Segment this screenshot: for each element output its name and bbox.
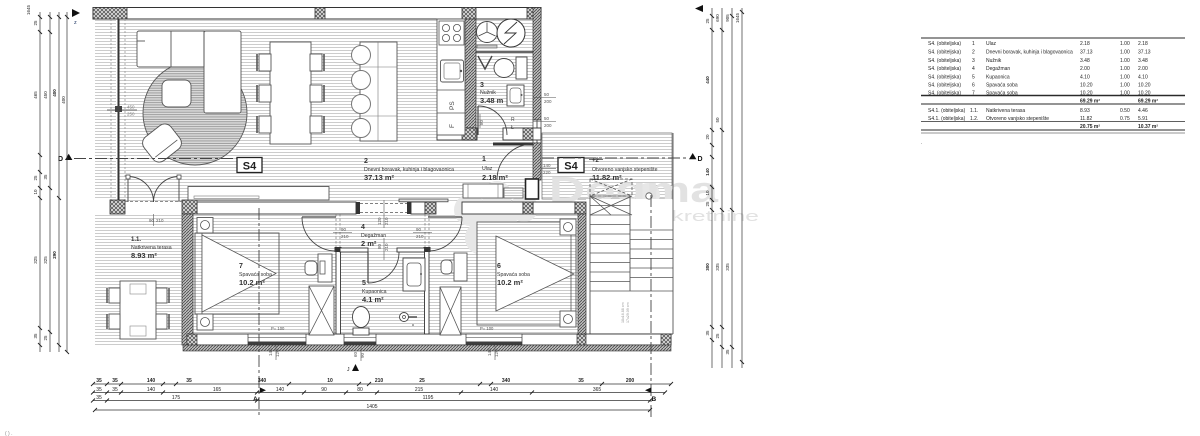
svg-text:0.50: 0.50 [1120, 108, 1130, 114]
svg-text:90: 90 [321, 387, 327, 393]
svg-text:S4. (obiteljska): S4. (obiteljska) [928, 75, 961, 81]
svg-text:210: 210 [341, 234, 349, 239]
svg-text:3: 3 [972, 58, 975, 64]
svg-text:250: 250 [127, 112, 135, 117]
svg-text:Natkrivena terasa: Natkrivena terasa [986, 108, 1025, 114]
svg-text:220: 220 [543, 170, 551, 175]
svg-text:2.18 m²: 2.18 m² [482, 173, 508, 182]
svg-text:25: 25 [705, 18, 710, 24]
svg-text:P= 100: P= 100 [480, 326, 494, 331]
svg-text:S4. (obiteljska): S4. (obiteljska) [928, 58, 961, 64]
svg-text:300: 300 [705, 263, 710, 271]
svg-text:10.37 m²: 10.37 m² [1138, 124, 1158, 130]
svg-text:S4.1. (obiteljska): S4.1. (obiteljska) [928, 108, 966, 114]
svg-text:S4.1. (obiteljska): S4.1. (obiteljska) [928, 116, 966, 122]
svg-text:0.75: 0.75 [1120, 116, 1130, 122]
svg-text:1.1.: 1.1. [970, 108, 978, 114]
svg-text:3.48: 3.48 [1080, 58, 1090, 64]
svg-text:210: 210 [156, 218, 164, 223]
svg-text:2.00: 2.00 [1138, 66, 1148, 72]
svg-text:80: 80 [377, 243, 382, 249]
svg-text:35: 35 [43, 174, 48, 180]
svg-text:10.20: 10.20 [1080, 91, 1093, 97]
svg-text:1.00: 1.00 [1120, 50, 1130, 56]
svg-text:1.00: 1.00 [1120, 66, 1130, 72]
svg-text:690: 690 [715, 14, 720, 22]
svg-text:7: 7 [239, 263, 243, 270]
svg-text:35: 35 [725, 349, 730, 355]
svg-text:1.00: 1.00 [1120, 41, 1130, 47]
svg-text:335: 335 [725, 263, 730, 271]
svg-text:400: 400 [61, 96, 66, 104]
svg-text:25: 25 [33, 20, 38, 26]
svg-text:905: 905 [725, 14, 730, 22]
svg-text:25: 25 [43, 335, 48, 341]
svg-text:10: 10 [33, 189, 38, 195]
svg-text:S4. (obiteljska): S4. (obiteljska) [928, 50, 961, 56]
svg-text:2.00: 2.00 [1080, 66, 1090, 72]
svg-text:140: 140 [487, 348, 492, 356]
svg-text:37.13: 37.13 [1080, 50, 1093, 56]
svg-text:S4: S4 [243, 161, 257, 173]
svg-text:D: D [698, 156, 703, 163]
svg-text:4: 4 [972, 66, 975, 72]
svg-text:4.10: 4.10 [1080, 75, 1090, 81]
svg-text:S4. (obiteljska): S4. (obiteljska) [928, 66, 961, 72]
svg-text:S4: S4 [564, 161, 578, 173]
svg-text:37.13 m²: 37.13 m² [364, 173, 395, 182]
svg-text:R: R [511, 117, 515, 123]
svg-text:( ) .: ( ) . [5, 431, 13, 436]
svg-text:3.48: 3.48 [1138, 58, 1148, 64]
svg-text:3.48 m: 3.48 m [480, 96, 504, 105]
svg-text:35: 35 [96, 395, 102, 401]
svg-text:200: 200 [544, 99, 552, 104]
svg-text:Spavaća soba: Spavaća soba [986, 83, 1018, 89]
svg-text:2 m²: 2 m² [361, 239, 377, 248]
svg-text:5: 5 [362, 280, 366, 287]
svg-text:1.1.: 1.1. [131, 237, 141, 243]
svg-text:340: 340 [258, 378, 267, 384]
svg-text:450: 450 [127, 105, 135, 110]
svg-text:25: 25 [715, 333, 720, 339]
svg-text:2: 2 [972, 50, 975, 56]
svg-text:80: 80 [357, 387, 363, 393]
svg-text:Ulaz: Ulaz [986, 41, 997, 47]
svg-text:215: 215 [415, 387, 424, 393]
svg-text:140: 140 [705, 168, 710, 176]
svg-text:1645: 1645 [26, 4, 31, 15]
svg-text:90: 90 [416, 227, 422, 232]
svg-text:290: 290 [52, 251, 57, 259]
svg-text:465: 465 [33, 91, 38, 99]
svg-text:17x29.09 cm: 17x29.09 cm [626, 302, 630, 323]
svg-text:35: 35 [96, 387, 102, 393]
svg-text:325: 325 [33, 256, 38, 264]
svg-text:4.10: 4.10 [1138, 75, 1148, 81]
svg-text:10: 10 [705, 190, 710, 196]
svg-text:140: 140 [543, 163, 551, 168]
svg-text:Nužnik: Nužnik [986, 58, 1002, 64]
svg-text:3: 3 [480, 82, 484, 89]
svg-text:Otvoreno vanjsko stepenište: Otvoreno vanjsko stepenište [986, 116, 1049, 122]
svg-text:50: 50 [715, 117, 720, 123]
svg-text:140: 140 [147, 387, 156, 393]
svg-text:18x16.88 cm: 18x16.88 cm [621, 302, 625, 323]
svg-text:365: 365 [593, 387, 602, 393]
svg-text:50: 50 [544, 116, 550, 121]
svg-text:140: 140 [490, 387, 499, 393]
svg-text:Spavaća soba: Spavaća soba [986, 91, 1018, 97]
svg-text:1.00: 1.00 [1120, 91, 1130, 97]
svg-text:2: 2 [364, 158, 368, 165]
svg-text:35: 35 [112, 378, 118, 384]
svg-text:37.13: 37.13 [1138, 50, 1151, 56]
svg-text:10.20: 10.20 [1138, 91, 1151, 97]
svg-text:165: 165 [213, 387, 222, 393]
svg-text:Dnevni boravak, kuhinja i blag: Dnevni boravak, kuhinja i blagovaonica [986, 50, 1073, 56]
svg-text:140: 140 [276, 387, 285, 393]
svg-text:8.93: 8.93 [1080, 108, 1090, 114]
svg-text:10.20: 10.20 [1138, 83, 1151, 89]
svg-text:25: 25 [705, 201, 710, 207]
svg-text:200: 200 [544, 123, 552, 128]
svg-text:440: 440 [705, 76, 710, 84]
svg-text:6: 6 [497, 263, 501, 270]
svg-text:10.2 m²: 10.2 m² [497, 278, 523, 287]
svg-text:335: 335 [715, 263, 720, 271]
svg-text:90: 90 [341, 227, 347, 232]
svg-text:+2: +2 [592, 158, 600, 164]
svg-text:1.2.: 1.2. [970, 116, 978, 122]
svg-text:1405: 1405 [366, 404, 377, 410]
svg-text:1195: 1195 [423, 395, 434, 401]
svg-text:S4. (obiteljska): S4. (obiteljska) [928, 83, 961, 89]
svg-text:4.1 m²: 4.1 m² [362, 295, 384, 304]
svg-text:210: 210 [416, 234, 424, 239]
svg-text:140: 140 [268, 348, 273, 356]
svg-text:35: 35 [96, 378, 102, 384]
svg-text:5.91: 5.91 [1138, 116, 1148, 122]
svg-text:2.18: 2.18 [1138, 41, 1148, 47]
svg-text:35: 35 [186, 378, 192, 384]
svg-text:60: 60 [353, 351, 358, 357]
svg-text:35: 35 [33, 333, 38, 339]
svg-text:z: z [74, 20, 77, 26]
svg-text:4.46: 4.46 [1138, 108, 1148, 114]
svg-text:1.00: 1.00 [1120, 58, 1130, 64]
svg-text:5: 5 [972, 75, 975, 81]
svg-text:7: 7 [972, 91, 975, 97]
svg-text:.: . [921, 140, 922, 146]
svg-text:210: 210 [384, 243, 389, 251]
svg-text:1.00: 1.00 [1120, 75, 1130, 81]
svg-text:325: 325 [43, 256, 48, 264]
svg-text:1645: 1645 [735, 12, 740, 23]
svg-text:10.2 m²: 10.2 m² [239, 278, 265, 287]
svg-text:11.82: 11.82 [1080, 116, 1092, 122]
svg-text:S4. (obiteljska): S4. (obiteljska) [928, 91, 961, 97]
svg-text:Kupaonica: Kupaonica [986, 75, 1010, 81]
svg-text:11.82 m²: 11.82 m² [592, 173, 622, 182]
svg-text:PS: PS [449, 101, 456, 110]
svg-text:Degažman: Degažman [986, 66, 1010, 72]
svg-text:69.29 m²: 69.29 m² [1080, 99, 1100, 105]
svg-text:1: 1 [972, 41, 975, 47]
svg-text:B: B [652, 396, 657, 403]
svg-text:340: 340 [502, 378, 511, 384]
svg-text:450: 450 [43, 91, 48, 99]
svg-text:120: 120 [377, 217, 382, 225]
svg-text:210: 210 [384, 217, 389, 225]
svg-text:35: 35 [705, 330, 710, 336]
svg-text:1: 1 [482, 156, 486, 163]
svg-text:50: 50 [544, 92, 550, 97]
svg-text:35: 35 [578, 378, 584, 384]
svg-text:210: 210 [375, 378, 384, 384]
svg-text:69.29 m²: 69.29 m² [1138, 99, 1158, 105]
svg-text:10: 10 [327, 378, 333, 384]
svg-text:Ł: Ł [511, 125, 514, 131]
svg-text:6: 6 [972, 83, 975, 89]
svg-text:F: F [449, 124, 456, 128]
svg-text:200: 200 [626, 378, 635, 384]
svg-text:25: 25 [419, 378, 425, 384]
svg-text:Ulaz: Ulaz [482, 166, 493, 172]
svg-text:8.93 m²: 8.93 m² [131, 251, 157, 260]
svg-text:10.20: 10.20 [1080, 83, 1093, 89]
svg-text:S4. (obiteljska): S4. (obiteljska) [928, 41, 961, 47]
svg-text:20: 20 [705, 134, 710, 140]
svg-text:4: 4 [361, 224, 365, 231]
svg-text:175: 175 [172, 395, 181, 401]
svg-text:400: 400 [52, 89, 57, 97]
svg-text:20.75 m²: 20.75 m² [1080, 124, 1100, 130]
svg-text:35: 35 [112, 387, 118, 393]
svg-text:140: 140 [147, 378, 156, 384]
svg-text:25: 25 [33, 175, 38, 181]
svg-text:1.00: 1.00 [1120, 83, 1130, 89]
svg-text:2.18: 2.18 [1080, 41, 1090, 47]
svg-text:P= 100: P= 100 [271, 326, 285, 331]
